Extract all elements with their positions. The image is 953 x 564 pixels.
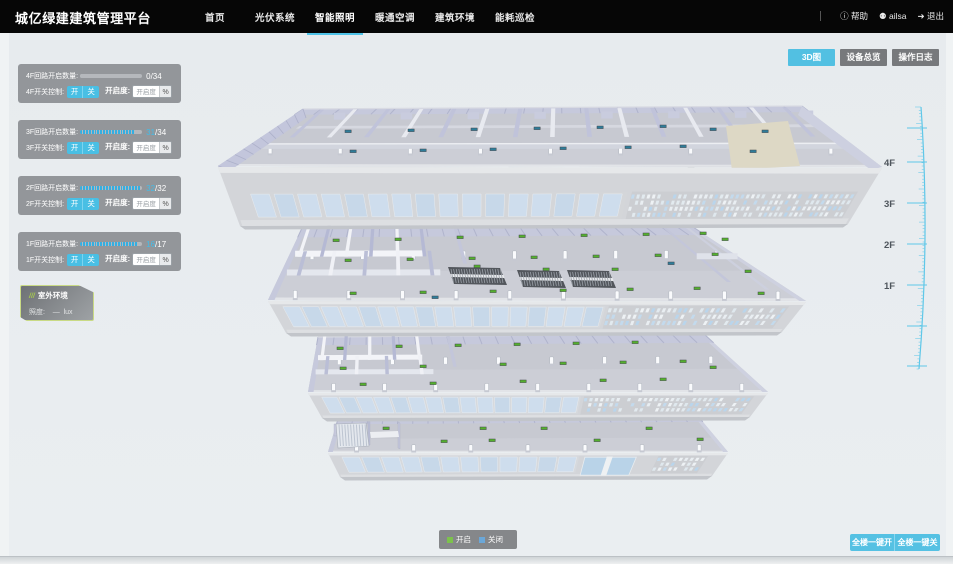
svg-text:2F: 2F <box>884 240 895 251</box>
svg-text:4F: 4F <box>884 158 895 169</box>
svg-text:3F: 3F <box>884 199 895 210</box>
svg-text:1F: 1F <box>884 281 895 292</box>
